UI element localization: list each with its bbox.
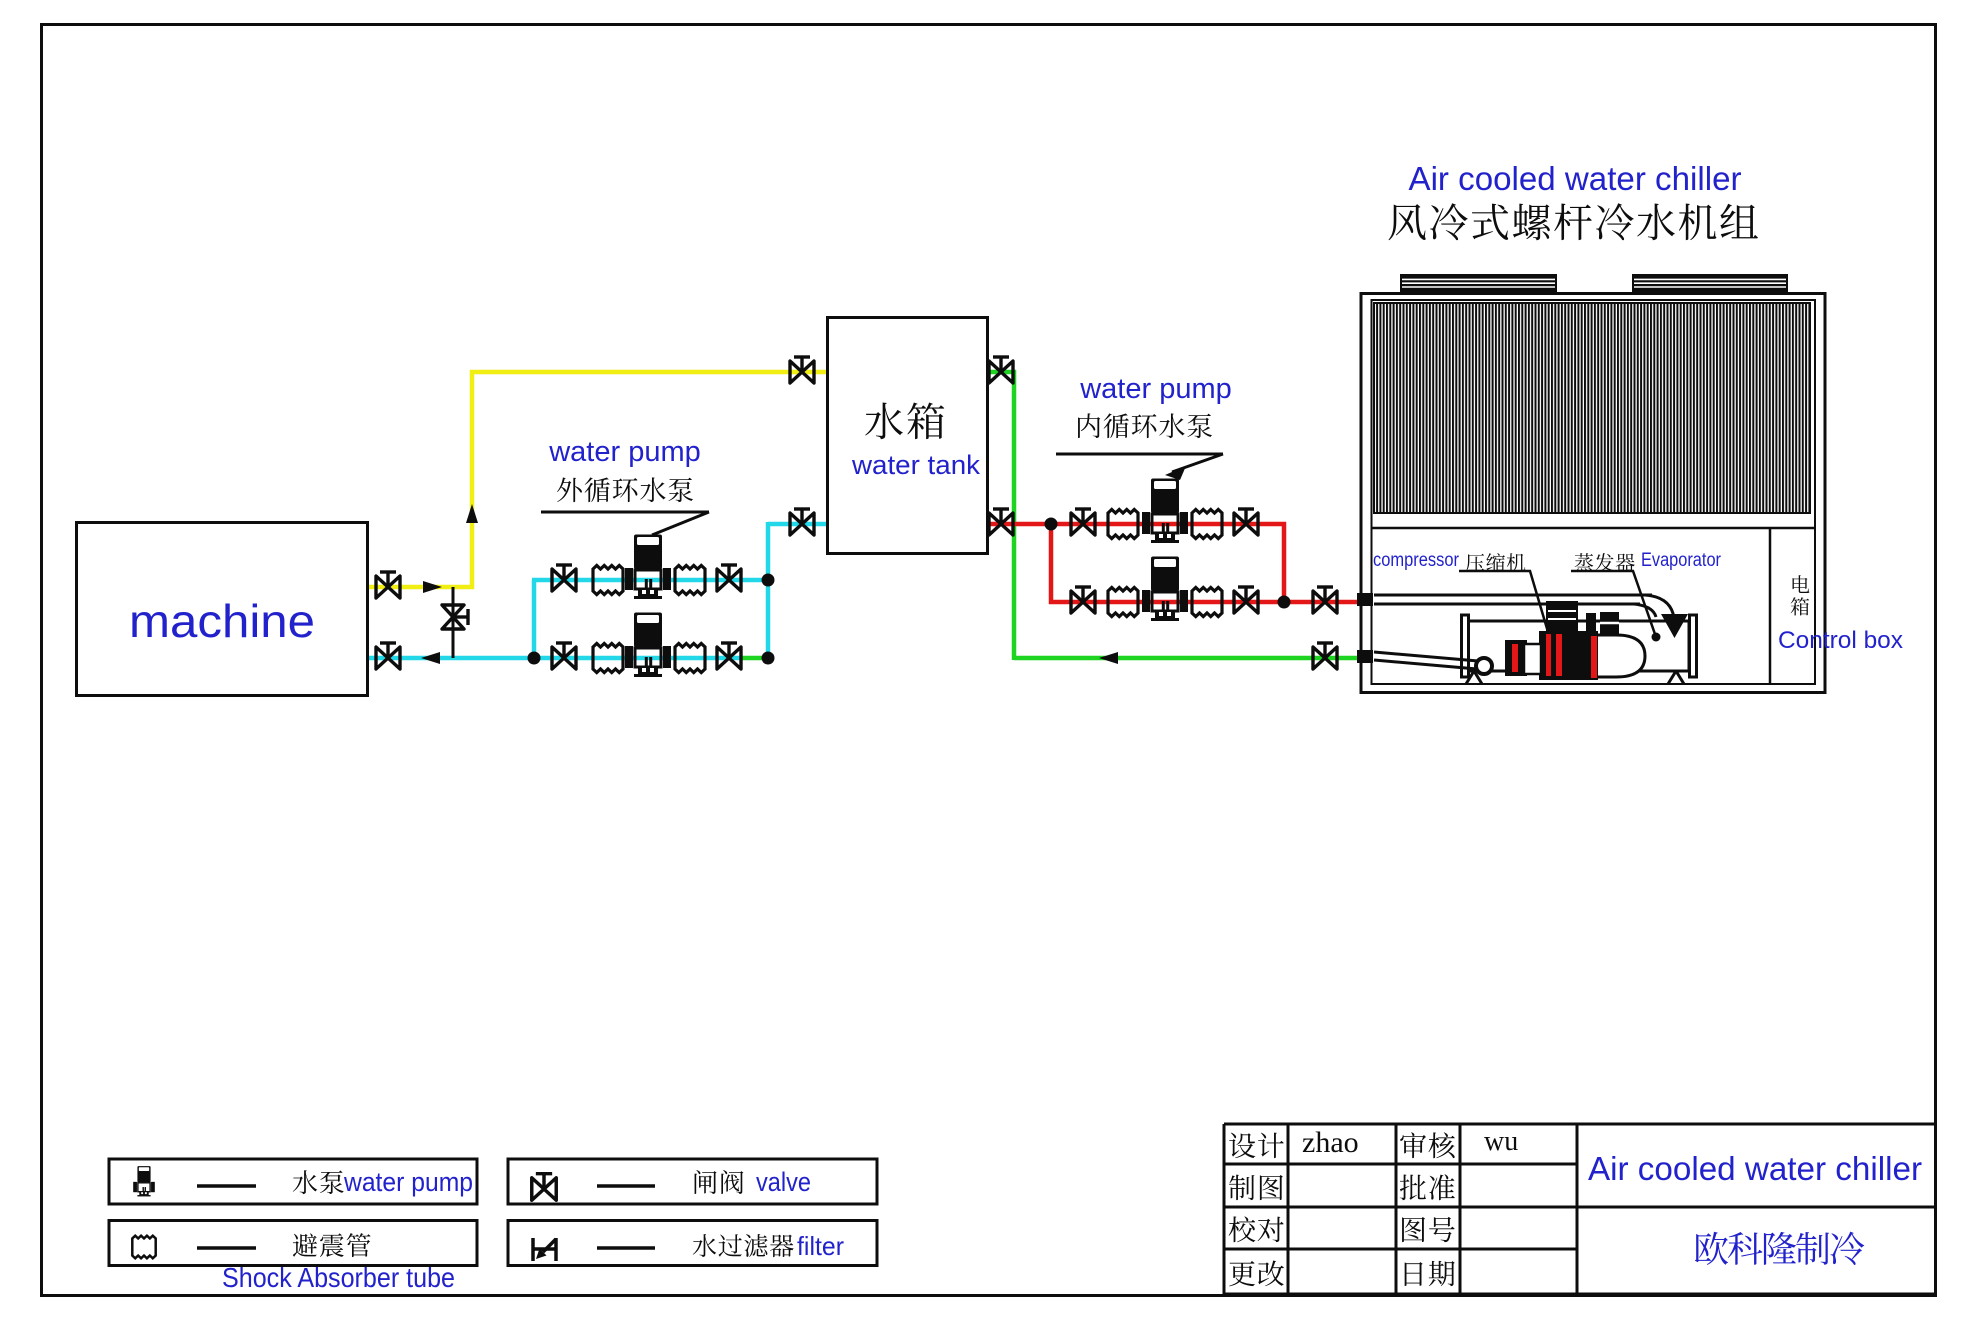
svg-text:wu: wu <box>1484 1126 1518 1157</box>
svg-text:zhao: zhao <box>1302 1126 1359 1159</box>
svg-text:machine: machine <box>129 595 315 647</box>
svg-text:water pump: water pump <box>343 1167 473 1197</box>
svg-text:water pump: water pump <box>548 436 701 468</box>
svg-text:Control box: Control box <box>1778 627 1903 654</box>
svg-text:Shock Absorber tube: Shock Absorber tube <box>222 1262 455 1293</box>
svg-text:Air cooled water chiller: Air cooled water chiller <box>1588 1150 1922 1187</box>
svg-text:valve: valve <box>756 1167 811 1197</box>
svg-text:water tank: water tank <box>851 450 981 480</box>
svg-text:water pump: water pump <box>1079 373 1232 405</box>
svg-text:filter: filter <box>797 1231 844 1261</box>
svg-text:compressor: compressor <box>1373 550 1460 571</box>
svg-text:Evaporator: Evaporator <box>1641 550 1722 571</box>
svg-text:Air cooled water chiller: Air cooled water chiller <box>1409 160 1742 197</box>
